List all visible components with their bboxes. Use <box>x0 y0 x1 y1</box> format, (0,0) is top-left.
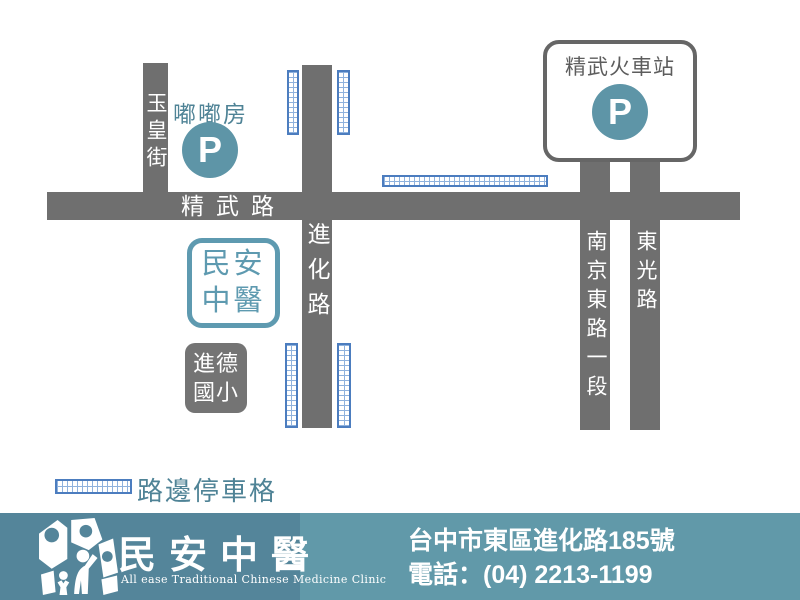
jinde-school-box: 進德 國小 <box>185 343 247 413</box>
road-label-jingwu-road: 精武路 <box>181 192 286 220</box>
school-name-line1: 進德 <box>193 349 239 378</box>
clinic-name-line2: 中醫 <box>201 283 265 320</box>
station-parking-icon: P <box>592 84 648 140</box>
footer-bar: 民安中醫 All ease Traditional Chinese Medici… <box>0 513 800 600</box>
footer-clinic-name: 民安中醫 <box>118 524 322 579</box>
parking-strip-upper-right <box>337 70 350 135</box>
legend-label: 路邊停車格 <box>137 471 277 508</box>
footer-clinic-subtitle: All ease Traditional Chinese Medicine Cl… <box>121 573 386 586</box>
dudufang-parking-icon: P <box>182 122 238 178</box>
road-label-jinhua-road: 進化路 <box>302 222 332 327</box>
school-name-line2: 國小 <box>193 378 239 407</box>
jingwu-station-label: 精武火車站 <box>565 51 675 81</box>
clinic-name-line1: 民安 <box>201 246 265 283</box>
legend-parking-strip-icon <box>55 479 132 494</box>
road-label-yuhuang-street: 玉皇街 <box>143 92 168 173</box>
jingwu-station-box: 精武火車站 P <box>543 40 697 162</box>
parking-strip-lower-right <box>337 343 351 428</box>
road-jingwu-road <box>47 192 740 220</box>
clinic-logo-icon <box>36 518 122 596</box>
footer-phone: 電話：(04) 2213-1199 <box>408 555 653 591</box>
parking-strip-lower-left <box>285 343 298 428</box>
clinic-direction-map: 玉皇街 精武路 進化路 南京東路一段 東光路 嘟嘟房 P 精武火車站 P 民安 … <box>0 0 800 600</box>
clinic-location-box: 民安 中醫 <box>187 238 280 328</box>
road-label-nanjing-east-road: 南京東路一段 <box>580 230 610 404</box>
footer-address: 台中市東區進化路185號 <box>408 521 675 557</box>
road-label-dongguang-road: 東光路 <box>630 230 660 317</box>
parking-strip-upper-left <box>287 70 299 135</box>
parking-strip-jingwu-road <box>382 175 548 187</box>
